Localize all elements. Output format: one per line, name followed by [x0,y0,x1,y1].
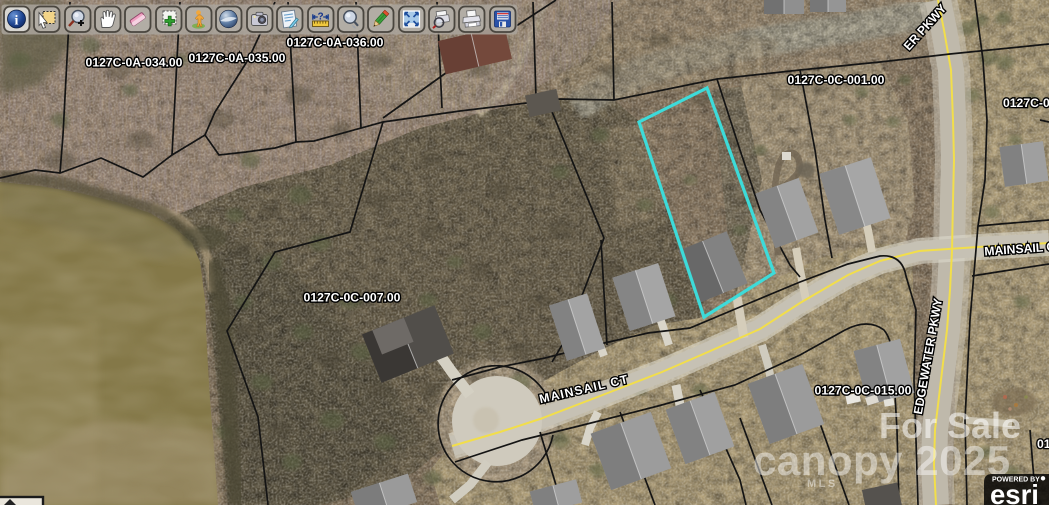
svg-text:canopy 2025: canopy 2025 [753,437,1011,484]
svg-text:0127C: 0127C [1037,437,1049,451]
svg-text:?: ? [317,12,323,23]
svg-text:0127C-0A-036.00: 0127C-0A-036.00 [287,36,384,50]
svg-text:esri: esri [990,479,1039,505]
svg-text:0127C-0C-015.00: 0127C-0C-015.00 [815,384,912,398]
svg-text:0127C-0A-034.00: 0127C-0A-034.00 [86,56,183,70]
svg-text:0127C-0C-007.00: 0127C-0C-007.00 [304,291,401,305]
svg-text:i: i [15,14,19,29]
svg-text:MLS: MLS [807,478,838,490]
svg-text:0127C-0A-035.00: 0127C-0A-035.00 [189,51,286,65]
svg-text:0127C-0C-0: 0127C-0C-0 [1003,96,1049,110]
svg-text:0127C-0C-001.00: 0127C-0C-001.00 [788,73,885,87]
